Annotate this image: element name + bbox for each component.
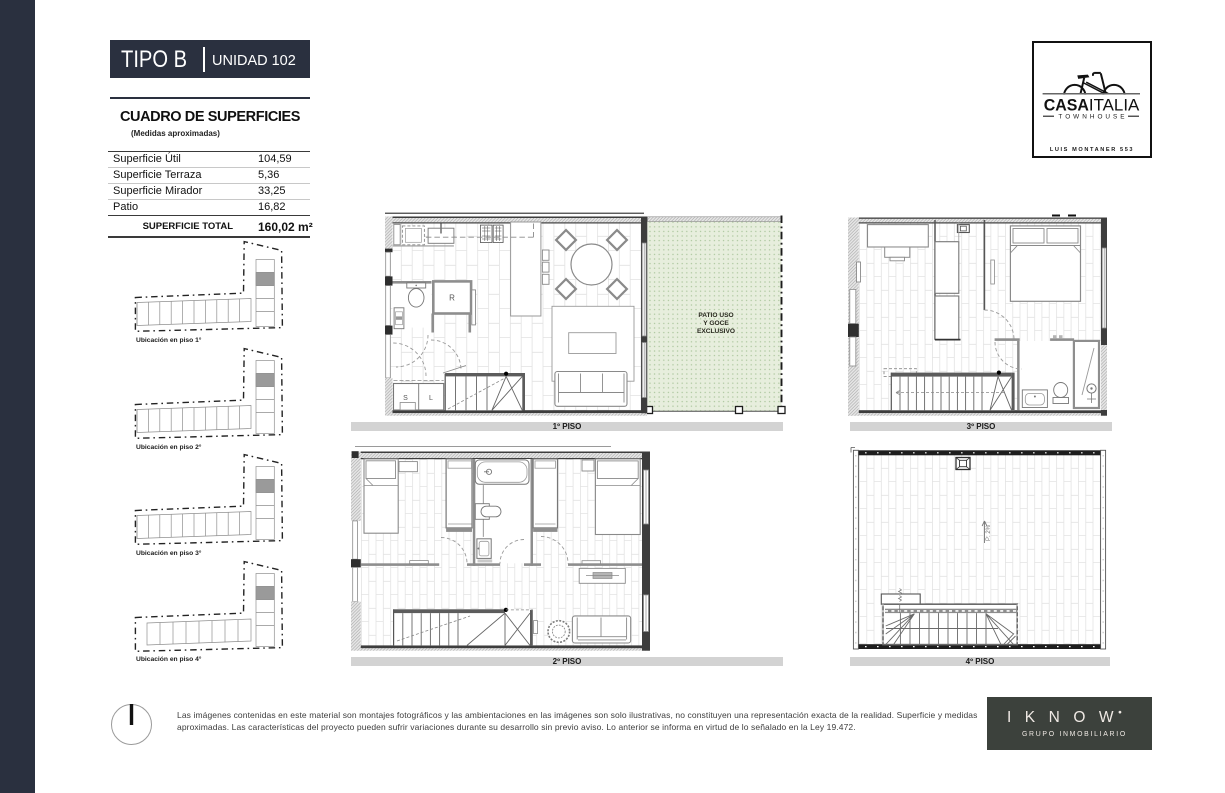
svg-text:PATIO USO: PATIO USO [698, 312, 733, 319]
svg-text:TOWNHOUSE: TOWNHOUSE [1058, 114, 1127, 121]
svg-text:ITALIA: ITALIA [1089, 96, 1140, 115]
svg-text:P: 2%: P: 2% [986, 524, 992, 541]
svg-text:L: L [429, 395, 433, 402]
svg-text:S: S [403, 395, 408, 402]
svg-text:CASA: CASA [1044, 96, 1089, 115]
svg-text:LUIS MONTANER 553: LUIS MONTANER 553 [1050, 147, 1134, 153]
svg-text:Y GOCE: Y GOCE [703, 320, 729, 327]
svg-text:R: R [449, 294, 455, 303]
svg-text:EXCLUSIVO: EXCLUSIVO [697, 328, 735, 335]
